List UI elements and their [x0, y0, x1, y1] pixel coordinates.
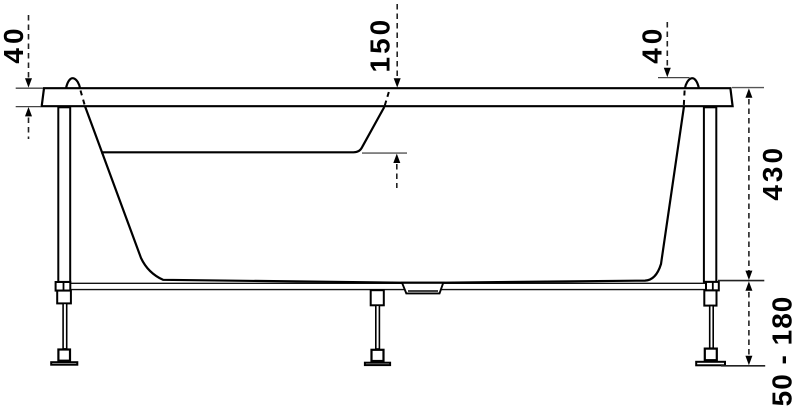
- svg-text:40: 40: [0, 24, 29, 63]
- svg-text:50 - 180: 50 - 180: [767, 296, 798, 407]
- svg-text:40: 40: [636, 25, 667, 64]
- svg-text:150: 150: [364, 17, 395, 73]
- svg-text:430: 430: [757, 145, 788, 201]
